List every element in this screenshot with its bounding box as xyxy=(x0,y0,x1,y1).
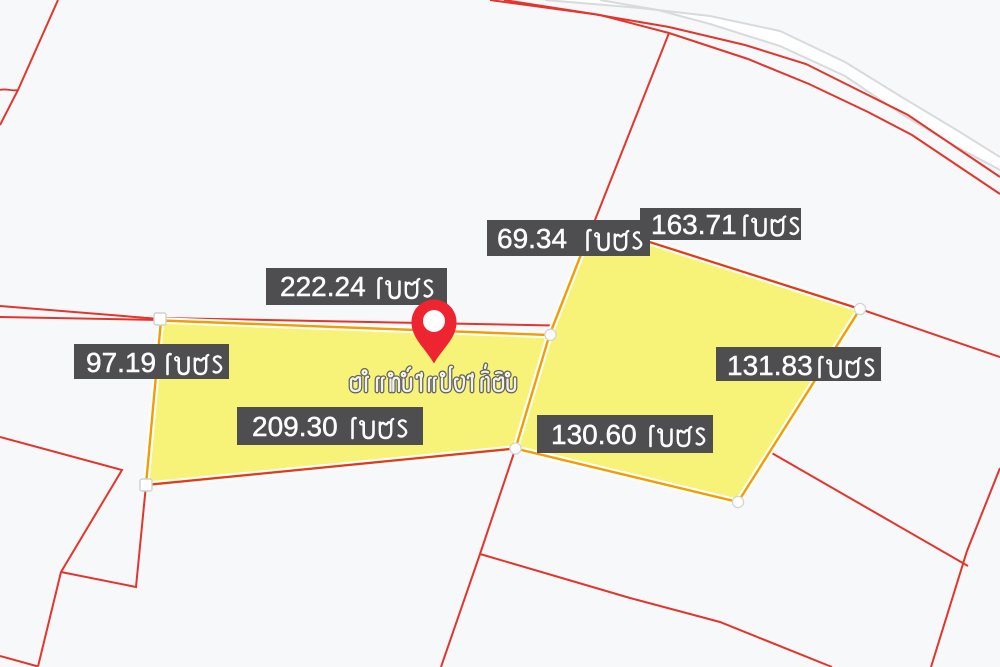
svg-text:222.24: 222.24 xyxy=(280,271,366,302)
svg-text:131.83: 131.83 xyxy=(727,350,813,381)
svg-text:163.71: 163.71 xyxy=(651,209,737,240)
svg-text:69.34: 69.34 xyxy=(497,223,567,254)
svg-text:97.19: 97.19 xyxy=(86,347,156,378)
svg-text:130.60: 130.60 xyxy=(551,419,637,450)
svg-text:209.30: 209.30 xyxy=(252,411,338,442)
